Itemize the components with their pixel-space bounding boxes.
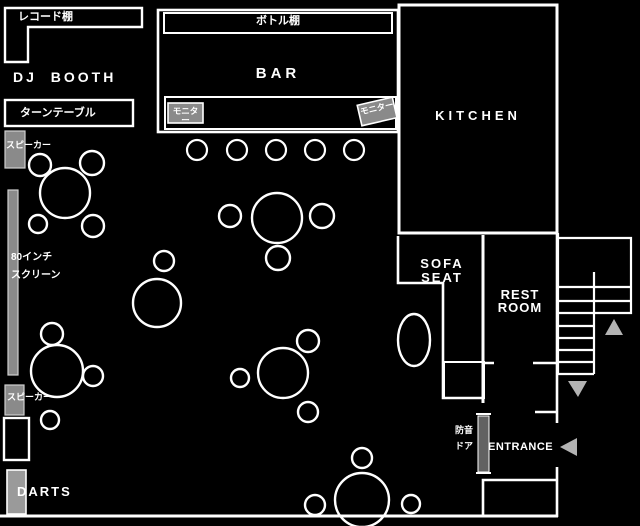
floor-plan: レコード棚 DJ BOOTH ターンテーブル スピーカー 80インチ スクリーン… [0, 0, 640, 526]
chair [80, 151, 104, 175]
bar-stool [305, 140, 325, 160]
chair [29, 215, 47, 233]
bar-stool [266, 140, 286, 160]
bottle-shelf-label: ボトル棚 [164, 15, 392, 27]
turntable-label: ターンテーブル [20, 107, 96, 119]
entrance-label: ENTRANCE [488, 441, 553, 453]
bar-label: BAR [158, 66, 398, 83]
bar-stool [187, 140, 207, 160]
kitchen-label: KITCHEN [399, 109, 557, 123]
entrance-arrow-icon [560, 438, 577, 456]
chair [83, 366, 103, 386]
table [133, 279, 181, 327]
screen-label-line1: 80インチ [11, 252, 52, 263]
chair [41, 411, 59, 429]
storage-box-outline [4, 418, 29, 460]
screen-80inch-bar [8, 190, 18, 375]
table [40, 168, 90, 218]
stairs-down-arrow-icon [568, 381, 587, 397]
sofa-seat-label-line2: SEAT [400, 271, 484, 285]
chair [41, 323, 63, 345]
restroom-label-line2: ROOM [483, 301, 557, 315]
table [252, 193, 302, 243]
bar-stool [227, 140, 247, 160]
soundproof-door-label-line2: ドア [452, 442, 476, 452]
bar-stool [344, 140, 364, 160]
chair [29, 154, 51, 176]
chair [310, 204, 334, 228]
chair [402, 495, 420, 513]
chair [352, 448, 372, 468]
chair [82, 215, 104, 237]
chair [305, 495, 325, 515]
dj-booth-label: DJ BOOTH [13, 70, 116, 85]
chair [297, 330, 319, 352]
chair [231, 369, 249, 387]
speaker-bottom-label: スピーカー [7, 393, 52, 403]
table [31, 345, 83, 397]
chair [154, 251, 174, 271]
table [335, 473, 389, 526]
stairs-up-arrow-icon [605, 319, 623, 335]
record-shelf-label: レコード棚 [18, 11, 73, 23]
soundproof-door-label-line1: 防音 [452, 426, 476, 436]
table [258, 348, 308, 398]
darts-label: DARTS [17, 485, 72, 499]
chair [219, 205, 241, 227]
screen-label-line2: スクリーン [11, 270, 61, 281]
chair [266, 246, 290, 270]
entrance-vestibule-walls [483, 467, 557, 517]
speaker-top-label: スピーカー [6, 141, 51, 151]
monitor-left-label: モニター [169, 107, 202, 126]
stairs [558, 233, 631, 374]
oval-table [398, 314, 430, 366]
closet-outline [444, 362, 484, 398]
chair [298, 402, 318, 422]
